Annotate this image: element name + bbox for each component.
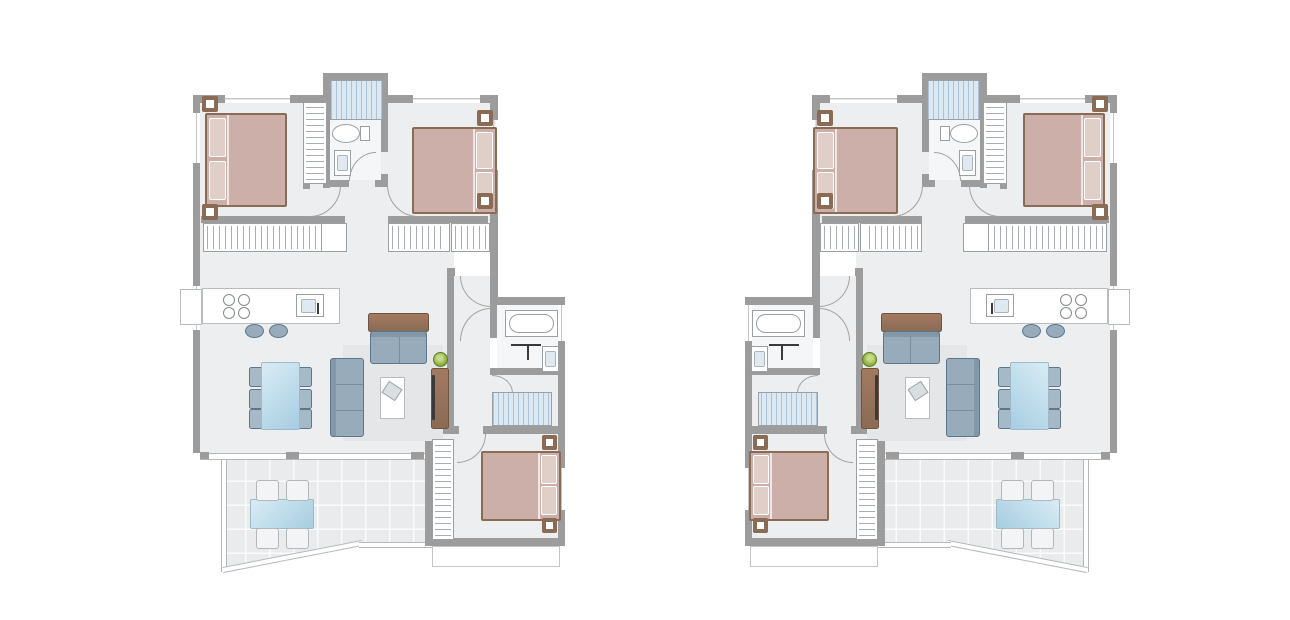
hanger-marks (306, 106, 324, 180)
staircase-lower (492, 392, 552, 426)
wall-entry-nub (855, 268, 863, 276)
hanger-marks (435, 443, 451, 536)
basin (301, 299, 316, 313)
console-table (368, 313, 429, 332)
double-bed (1023, 113, 1105, 207)
terrace-railing-left (221, 460, 227, 572)
dining-table (1010, 362, 1049, 430)
sofa-back (884, 332, 939, 337)
faucet (991, 303, 993, 314)
wardrobe-cabinet (321, 223, 347, 252)
floor-plan-canvas (0, 0, 1290, 620)
pillow (1084, 161, 1101, 200)
staircase-upper (330, 80, 383, 120)
bathtub-basin (509, 314, 554, 333)
shower-head (781, 346, 783, 360)
kitchen-sink (986, 294, 1014, 317)
hanger-marks (864, 226, 918, 249)
nightstand (542, 518, 557, 533)
terrace-table (996, 499, 1060, 529)
shower-rail (769, 344, 799, 346)
toilet-tank (940, 126, 950, 141)
basin (962, 155, 973, 171)
cushion-divider (911, 337, 912, 363)
wardrobe-hangers (451, 223, 490, 252)
wall-entry-nub (447, 268, 455, 276)
kitchen-window-sill (180, 289, 202, 325)
bar-stool (269, 324, 288, 338)
hob-burner (1075, 294, 1087, 306)
bar-stool (1046, 324, 1065, 338)
terrace-railing-bottom (878, 542, 951, 548)
wall-mid-left (201, 216, 345, 223)
blanket-fold (473, 129, 475, 212)
hob-burner (223, 307, 235, 319)
window (1020, 95, 1085, 103)
basin (337, 155, 348, 171)
basin (994, 299, 1009, 313)
terrace-chair (1001, 480, 1024, 501)
washbasin (959, 150, 976, 176)
hob-burner (238, 307, 250, 319)
terrace-post (1011, 452, 1024, 459)
wall-wardrobe3-left (878, 434, 885, 546)
terrace-chair (286, 528, 309, 549)
washbasin (334, 150, 351, 176)
terrace-chair (1001, 528, 1024, 549)
terrace-chair (1031, 480, 1054, 501)
cushion-divider (399, 337, 400, 363)
terrace-post (200, 452, 209, 459)
terrace-chair (1031, 528, 1054, 549)
terrace-railing-bottom (359, 542, 432, 548)
hob-burner (1075, 307, 1087, 319)
floor-plan-unit-a (193, 68, 565, 580)
window (1110, 113, 1117, 163)
cushion-divider (947, 384, 974, 385)
pillow (753, 486, 769, 515)
hanger-marks (859, 443, 875, 536)
terrace-railing-top (885, 453, 1110, 460)
nightstand (477, 110, 493, 126)
cushion-divider (336, 384, 363, 385)
wardrobe-hangers (856, 439, 878, 540)
loveseat (883, 331, 940, 364)
terrace-post (1101, 452, 1110, 459)
faucet (317, 303, 319, 314)
plant (862, 352, 877, 367)
table-decor (907, 381, 928, 401)
wall-stair-top (323, 73, 388, 80)
balcony (432, 546, 560, 567)
terrace-chair (256, 528, 279, 549)
nightstand (1092, 96, 1108, 112)
wall-bathroom2-top (745, 297, 820, 305)
hanger-marks (207, 226, 319, 249)
bar-stool (1022, 324, 1041, 338)
wall-bedroom3-top-b (483, 426, 565, 434)
closet-hangers (303, 102, 327, 184)
loveseat (370, 331, 427, 364)
shower-rail (511, 344, 541, 346)
pillow (817, 132, 834, 169)
double-bed (481, 451, 561, 521)
coffee-table (380, 377, 405, 419)
pillow (476, 132, 493, 169)
terrace-railing-top (200, 453, 425, 460)
hanger-marks (824, 226, 855, 249)
tv-screen (432, 375, 435, 420)
wardrobe-hangers (388, 223, 450, 252)
hanger-marks (392, 226, 446, 249)
blanket-fold (227, 115, 229, 205)
window (413, 95, 480, 103)
sofa-back (974, 359, 979, 436)
dining-table (261, 362, 300, 430)
washbasin (542, 346, 559, 372)
nightstand (1092, 204, 1108, 220)
pillow (209, 161, 226, 200)
hob-burner (1060, 294, 1072, 306)
blanket-fold (1081, 115, 1083, 205)
wardrobe-hangers (987, 223, 1107, 252)
window (225, 95, 290, 103)
blanket-fold (835, 129, 837, 212)
nightstand (817, 110, 833, 126)
kitchen-window-sill (1108, 289, 1130, 325)
terrace-post (286, 452, 299, 459)
table-decor (381, 381, 402, 401)
terrace-post (411, 452, 424, 459)
toilet-tank (360, 126, 370, 141)
wall-stair-top (922, 73, 987, 80)
bathtub (505, 310, 558, 337)
blanket-fold (538, 453, 540, 519)
pillow (209, 118, 226, 157)
nightstand (542, 435, 557, 450)
sofa-back (331, 359, 336, 436)
staircase-upper (927, 80, 980, 120)
nightstand (753, 435, 768, 450)
window (745, 305, 752, 341)
balcony (750, 546, 878, 567)
bathtub-basin (756, 314, 801, 333)
wardrobe-hangers (432, 439, 454, 540)
terrace-table (250, 499, 314, 529)
basin (754, 351, 765, 367)
hanger-marks (986, 106, 1004, 180)
coffee-table (905, 377, 930, 419)
washbasin (751, 346, 768, 372)
pillow (1084, 118, 1101, 157)
shower-head (527, 346, 529, 360)
hanger-marks (455, 226, 486, 249)
wall-bedroom3-top-b (745, 426, 827, 434)
wardrobe-hangers (203, 223, 323, 252)
wall-mid-right (822, 216, 922, 223)
basin (545, 351, 556, 367)
bathtub (752, 310, 805, 337)
hob-burner (1060, 307, 1072, 319)
terrace-railing-left (1083, 460, 1089, 572)
nightstand (202, 96, 218, 112)
blanket-fold (770, 453, 772, 519)
double-bed (205, 113, 287, 207)
nightstand (477, 193, 493, 209)
toilet-bowl (332, 124, 360, 143)
closet-hangers (983, 102, 1007, 184)
console-table (881, 313, 942, 332)
terrace-chair (286, 480, 309, 501)
pillow (753, 455, 769, 484)
wardrobe-cabinet (963, 223, 989, 252)
nightstand (202, 204, 218, 220)
sofa (946, 358, 980, 437)
nightstand (753, 518, 768, 533)
terrace-chair (256, 480, 279, 501)
wardrobe-hangers (860, 223, 922, 252)
plant (433, 352, 448, 367)
hob-burner (238, 294, 250, 306)
bar-stool (245, 324, 264, 338)
tv-screen (875, 375, 878, 420)
toilet-bowl (950, 124, 978, 143)
hanger-marks (991, 226, 1103, 249)
sofa (330, 358, 364, 437)
cushion-divider (336, 410, 363, 411)
double-bed (749, 451, 829, 521)
pillow (541, 455, 557, 484)
wall-mid-right (388, 216, 488, 223)
staircase-lower (758, 392, 818, 426)
wall-bathroom1-bottom-b (922, 180, 935, 187)
cushion-divider (947, 410, 974, 411)
wall-mid-left (965, 216, 1109, 223)
wardrobe-hangers (820, 223, 859, 252)
hob-burner (223, 294, 235, 306)
window (193, 113, 200, 163)
window (830, 95, 897, 103)
pillow (541, 486, 557, 515)
nightstand (817, 193, 833, 209)
window (558, 305, 565, 341)
floor-plan-unit-b (745, 68, 1117, 580)
wall-wardrobe3-left (425, 434, 432, 546)
kitchen-sink (296, 294, 324, 317)
wall-bathroom2-left (490, 305, 497, 338)
terrace-post (886, 452, 899, 459)
wall-bathroom2-top (490, 297, 565, 305)
